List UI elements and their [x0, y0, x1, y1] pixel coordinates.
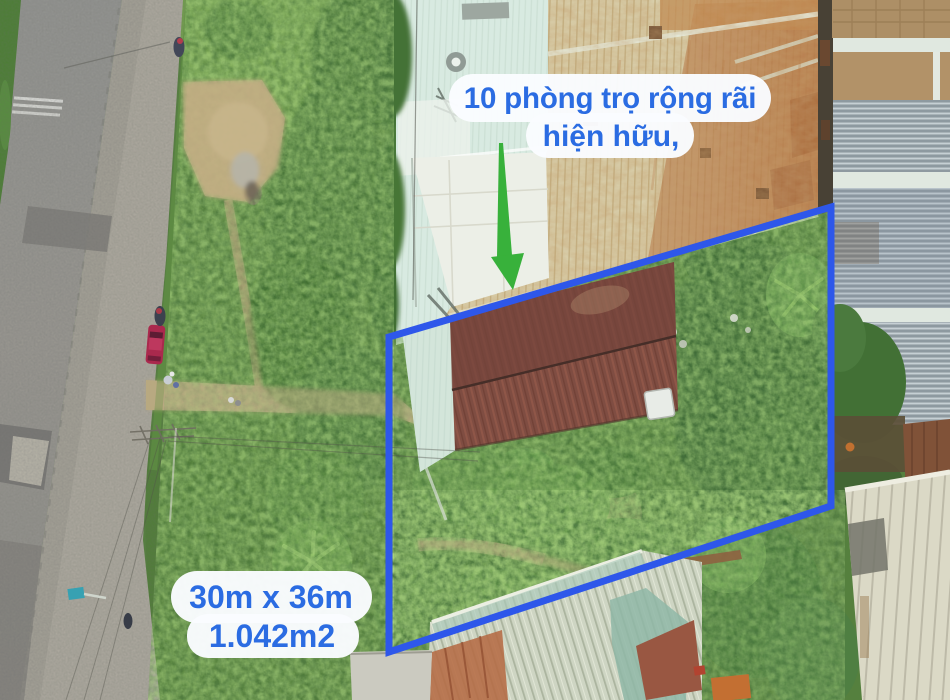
svg-text:hiện hữu,: hiện hữu,: [543, 120, 680, 153]
svg-text:30m x 36m: 30m x 36m: [189, 579, 353, 615]
svg-text:10 phòng trọ rộng rãi: 10 phòng trọ rộng rãi: [464, 82, 756, 115]
svg-text:1.042m2: 1.042m2: [209, 618, 335, 654]
